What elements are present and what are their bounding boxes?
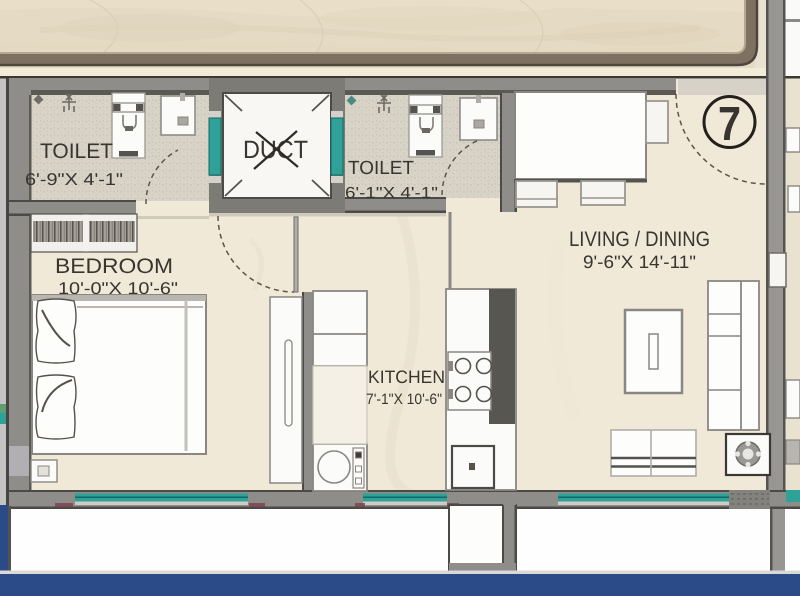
svg-text:6'-1"X 4'-1": 6'-1"X 4'-1" [345, 185, 438, 202]
svg-text:9'-6"X 14'-11": 9'-6"X 14'-11" [583, 252, 696, 272]
svg-text:7: 7 [718, 98, 741, 151]
svg-text:6'-9"X 4'-1": 6'-9"X 4'-1" [25, 170, 123, 189]
svg-text:TOILET: TOILET [348, 158, 414, 179]
svg-text:LIVING / DINING: LIVING / DINING [569, 228, 710, 251]
svg-text:BEDROOM: BEDROOM [55, 255, 173, 278]
svg-text:TOILET: TOILET [40, 140, 113, 163]
svg-text:7'-1"X 10'-6": 7'-1"X 10'-6" [366, 391, 442, 408]
svg-text:KITCHEN: KITCHEN [368, 367, 445, 387]
